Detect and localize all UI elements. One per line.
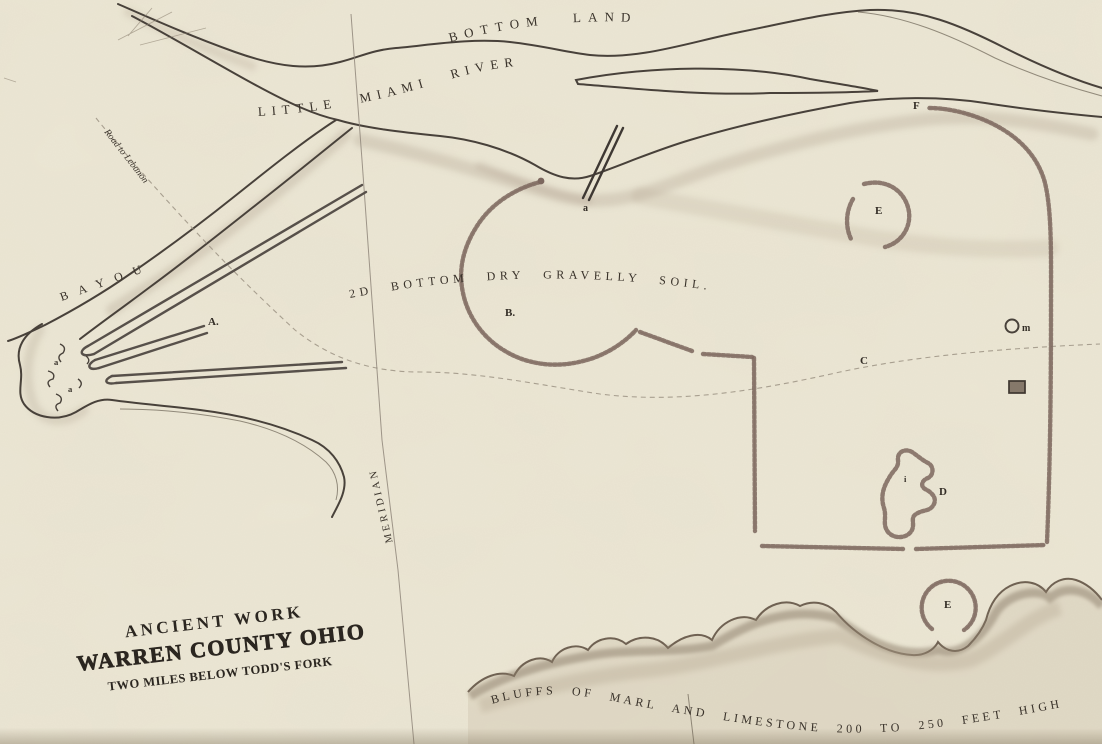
marker-E-lower: E [944, 599, 951, 611]
marker-a-river: a [583, 203, 588, 214]
marker-A: A. [208, 316, 219, 328]
great-circle-terminal-mound [538, 178, 545, 185]
scan-shadow-bottom [0, 728, 1102, 744]
marker-B: B. [505, 307, 515, 319]
map-scan: BOTTOM LAND LITTLE MIAMI RIVER BAYOU 2D … [0, 0, 1102, 744]
marker-C: C [860, 355, 868, 367]
marker-D: D [939, 486, 947, 498]
neck-wall-east [703, 354, 752, 357]
enclosure-west-wall [754, 358, 755, 531]
marker-m: m [1022, 323, 1031, 334]
marker-E-upper: E [875, 205, 882, 217]
marker-F: F [913, 100, 920, 112]
square-mound [1009, 381, 1025, 393]
enclosure-south-wall-west [762, 546, 903, 549]
ancient-work-map: BOTTOM LAND LITTLE MIAMI RIVER BAYOU 2D … [0, 0, 1102, 744]
